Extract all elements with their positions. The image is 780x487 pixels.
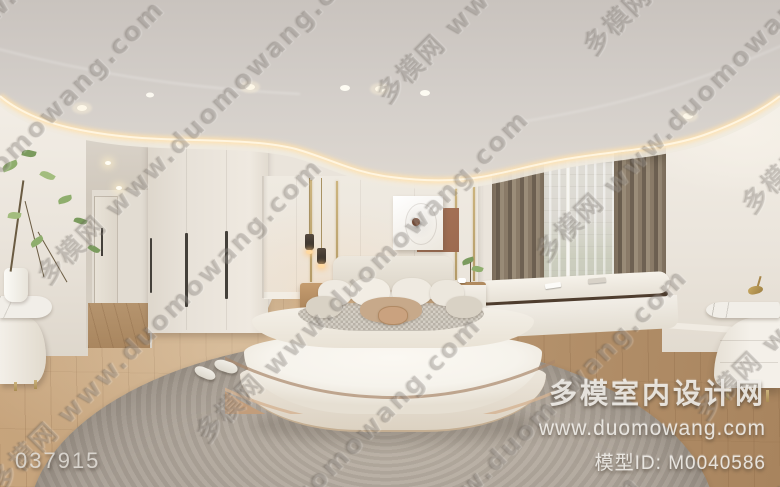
brand-site-url: www.duomowang.com [539,417,766,441]
panorama-bedroom-render: 多模网 www.duomowang.com多模网 www.duomowang.c… [0,0,780,487]
render-id-watermark: 037915 [15,448,100,474]
brand-site-name: 多模室内设计网 [539,372,766,412]
brand-model-id: 模型ID: M0040586 [539,448,766,475]
brand-watermark: 多模室内设计网 www.duomowang.com 模型ID: M0040586 [539,372,766,475]
